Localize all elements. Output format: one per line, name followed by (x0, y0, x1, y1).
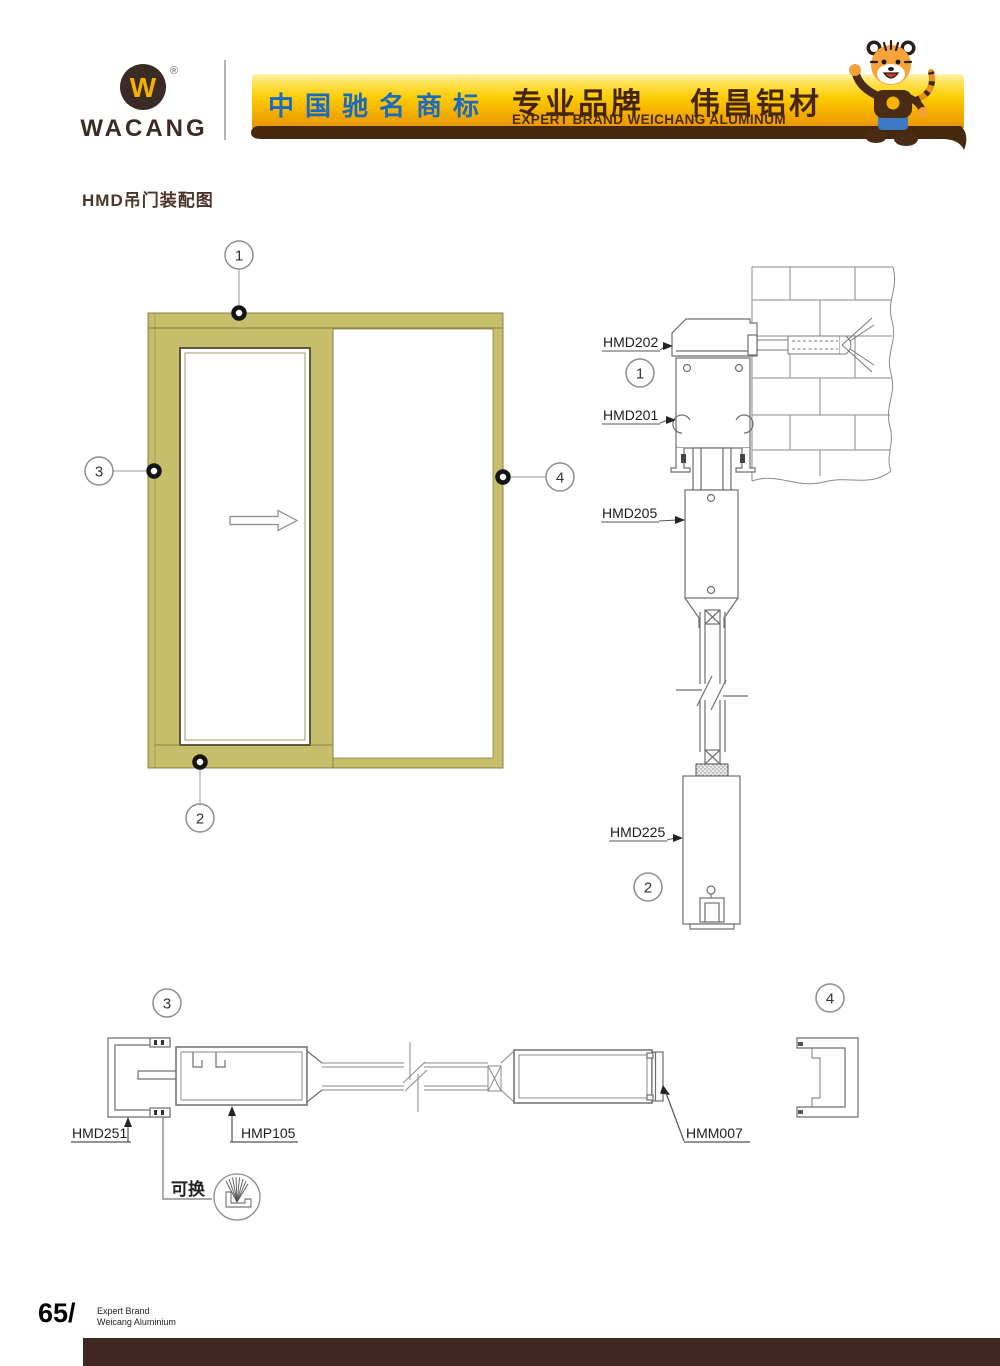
section-callout-3: 3 (153, 989, 181, 1017)
svg-text:2: 2 (644, 880, 652, 897)
callout-1: 1 (225, 241, 253, 269)
profile-hmm007-meeting-stile (514, 1050, 663, 1103)
svg-text:4: 4 (826, 991, 834, 1008)
marker-ring-4 (498, 472, 509, 483)
svg-text:1: 1 (636, 366, 644, 383)
callout-4: 4 (546, 463, 574, 491)
horizontal-section: 3 (71, 984, 858, 1220)
replaceable-note: 可换 (171, 1179, 206, 1199)
label-hmd201: HMD201 (603, 407, 658, 423)
section-callout-4: 4 (816, 984, 844, 1012)
profile-hmd251-jamb (108, 1038, 186, 1117)
vertical-section-labels: HMD202 HMD201 HMD205 HMD225 (601, 334, 685, 842)
profile-hmd205-top-rail (685, 490, 738, 628)
label-hmm007: HMM007 (686, 1125, 743, 1141)
door-leaf-glass (180, 348, 310, 745)
marker-ring-3 (149, 466, 160, 477)
svg-text:1: 1 (235, 248, 243, 265)
svg-text:3: 3 (163, 996, 171, 1013)
profile-hmd201-track (671, 358, 755, 490)
footer-brand-line1: Expert Brand (97, 1306, 176, 1317)
profile-callout4-jamb (797, 1038, 858, 1117)
label-hmp105: HMP105 (241, 1125, 296, 1141)
label-hmd251: HMD251 (72, 1125, 127, 1141)
profile-hmd202 (672, 319, 757, 356)
profile-hmp105-stile (176, 1047, 322, 1105)
label-hmd202: HMD202 (603, 334, 658, 350)
door-elevation: 1 2 3 4 (85, 241, 574, 832)
glass-unit-horizontal (322, 1042, 514, 1112)
svg-text:3: 3 (95, 464, 103, 481)
profile-hmd225-bottom-rail (683, 776, 740, 929)
assembly-drawing: 1 2 3 4 (0, 0, 1000, 1366)
svg-text:4: 4 (556, 470, 564, 487)
section-callout-1: 1 (626, 359, 654, 387)
glass-unit-vertical (676, 610, 748, 776)
svg-text:2: 2 (196, 811, 204, 828)
vertical-section: HMD202 HMD201 HMD205 HMD225 1 2 (601, 267, 895, 929)
footer-brand-text: Expert Brand Weicang Aluminium (97, 1306, 176, 1328)
label-hmd205: HMD205 (602, 505, 657, 521)
footer-bar (83, 1338, 1000, 1366)
fixed-panel (333, 329, 493, 758)
marker-ring-1 (234, 308, 245, 319)
label-hmd225: HMD225 (610, 824, 665, 840)
section-callout-2: 2 (634, 873, 662, 901)
callout-3: 3 (85, 457, 113, 485)
page-number: 65/ (38, 1298, 76, 1329)
anchor-bolt (756, 318, 874, 372)
marker-ring-2 (195, 757, 206, 768)
footer-brand-line2: Weicang Aluminium (97, 1317, 176, 1328)
callout-2: 2 (186, 804, 214, 832)
wall-section (752, 267, 895, 484)
